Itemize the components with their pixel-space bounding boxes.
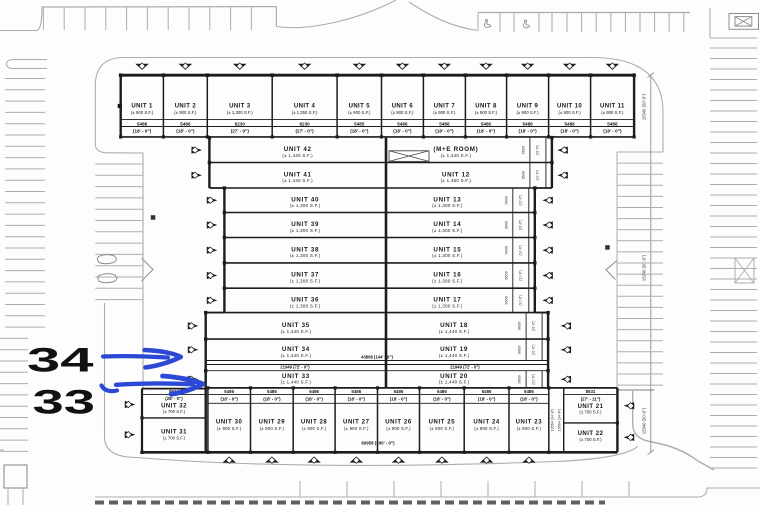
svg-text:5486: 5486 xyxy=(564,121,575,126)
svg-text:(± 900 S.F.): (± 900 S.F.) xyxy=(260,426,285,431)
svg-text:(18' - 0”): (18' - 0”) xyxy=(518,129,537,134)
svg-text:(27' - 0”): (27' - 0”) xyxy=(231,129,250,134)
svg-text:UNIT 27: UNIT 27 xyxy=(343,420,370,426)
svg-text:(18' - 0”): (18' - 0”) xyxy=(305,397,323,402)
svg-text:UNIT 30: UNIT 30 xyxy=(216,420,243,426)
svg-text:8230: 8230 xyxy=(299,121,310,126)
svg-text:9609: 9609 xyxy=(518,375,522,383)
svg-text:(31'-6”): (31'-6”) xyxy=(532,345,536,356)
svg-text:UNIT 29: UNIT 29 xyxy=(259,420,286,426)
svg-text:(± 1,440 S.F.): (± 1,440 S.F.) xyxy=(281,329,312,334)
svg-text:(± 1,440 S.F.): (± 1,440 S.F.) xyxy=(439,329,470,334)
svg-text:9609: 9609 xyxy=(521,146,525,154)
svg-text:(± 1,440 S.F.): (± 1,440 S.F.) xyxy=(281,353,312,358)
svg-text:(± 900 S.F.): (± 900 S.F.) xyxy=(601,110,624,115)
svg-text:(18' - 0”): (18' - 0”) xyxy=(433,397,451,402)
svg-text:(± 900 S.F.): (± 900 S.F.) xyxy=(474,426,499,431)
svg-text:(± 700 S.F.): (± 700 S.F.) xyxy=(163,435,186,440)
svg-text:(± 1,350 S.F.): (± 1,350 S.F.) xyxy=(292,110,318,115)
svg-text:(± 1,300 S.F.): (± 1,300 S.F.) xyxy=(432,303,463,308)
svg-text:60958 (200' - 0”): 60958 (200' - 0”) xyxy=(361,440,395,445)
svg-text:(± 1,300 S.F.): (± 1,300 S.F.) xyxy=(432,279,463,284)
svg-text:UNIT 8: UNIT 8 xyxy=(475,104,497,110)
svg-text:(31'-6”): (31'-6”) xyxy=(518,270,522,281)
svg-text:5486: 5486 xyxy=(481,121,492,126)
svg-text:UNIT 25: UNIT 25 xyxy=(429,420,456,426)
svg-text:10564 (34'-8"): 10564 (34'-8") xyxy=(551,409,555,432)
svg-text:(± 900 S.F.): (± 900 S.F.) xyxy=(344,426,369,431)
svg-text:UNIT 5: UNIT 5 xyxy=(349,104,371,110)
svg-text:UNIT 24: UNIT 24 xyxy=(473,420,500,426)
svg-text:(± 1,300 S.F.): (± 1,300 S.F.) xyxy=(227,110,253,115)
svg-text:(27' - 0”): (27' - 0”) xyxy=(295,129,314,134)
svg-text:(18' - 0”): (18' - 0”) xyxy=(603,129,622,134)
svg-text:9609: 9609 xyxy=(518,322,522,330)
svg-text:(31'-6”): (31'-6”) xyxy=(518,245,522,256)
svg-text:(± 900 S.F.): (± 900 S.F.) xyxy=(386,426,411,431)
svg-text:(18' - 0”): (18' - 0”) xyxy=(478,397,496,402)
svg-text:UNIT 7: UNIT 7 xyxy=(434,104,456,110)
svg-text:(18' - 0”): (18' - 0”) xyxy=(390,397,408,402)
svg-text:(± 900 S.F.): (± 900 S.F.) xyxy=(517,426,542,431)
svg-text:(± 1,300 S.F.): (± 1,300 S.F.) xyxy=(290,253,321,258)
svg-text:5486: 5486 xyxy=(439,121,450,126)
svg-text:5486: 5486 xyxy=(351,389,361,394)
svg-text:(± 1,300 S.F.): (± 1,300 S.F.) xyxy=(290,303,321,308)
svg-text:9609: 9609 xyxy=(504,221,508,229)
svg-text:5486: 5486 xyxy=(267,389,277,394)
svg-text:(31'-6”): (31'-6”) xyxy=(518,195,522,206)
svg-text:(31'-6”): (31'-6”) xyxy=(518,295,522,306)
svg-text:(± 900 S.F.): (± 900 S.F.) xyxy=(131,110,154,115)
svg-text:UNIT 6: UNIT 6 xyxy=(392,104,414,110)
svg-text:5486: 5486 xyxy=(137,121,148,126)
svg-text:(± 700 S.F.): (± 700 S.F.) xyxy=(579,437,602,442)
svg-text:(± 1,300 S.F.): (± 1,300 S.F.) xyxy=(432,228,463,233)
svg-text:(18' - 0”): (18' - 0”) xyxy=(477,129,496,134)
svg-text:(± 1,460 S.F.): (± 1,460 S.F.) xyxy=(441,178,472,183)
svg-text:(± 1,440 S.F.): (± 1,440 S.F.) xyxy=(439,353,470,358)
svg-text:(18' - 0”): (18' - 0”) xyxy=(220,397,238,402)
svg-text:UNIT 1: UNIT 1 xyxy=(131,104,153,110)
svg-text:43898 (144' - 0”): 43898 (144' - 0”) xyxy=(361,354,393,359)
svg-text:(± 1,440 S.F.): (± 1,440 S.F.) xyxy=(282,153,313,158)
svg-text:(± 900 S.F.): (± 900 S.F.) xyxy=(174,110,197,115)
svg-text:UNIT 28: UNIT 28 xyxy=(301,420,328,426)
svg-text:10564 (34'-8"): 10564 (34'-8") xyxy=(558,409,562,432)
svg-text:(18' - 0”): (18' - 0”) xyxy=(520,397,538,402)
svg-text:9609: 9609 xyxy=(504,271,508,279)
svg-text:5486: 5486 xyxy=(524,389,534,394)
svg-text:(± 900 S.F.): (± 900 S.F.) xyxy=(433,110,456,115)
svg-text:33: 33 xyxy=(33,384,96,422)
svg-text:UNIT 26: UNIT 26 xyxy=(385,420,412,426)
svg-text:UNIT 4: UNIT 4 xyxy=(294,104,316,110)
svg-text:(± 1,300 S.F.): (± 1,300 S.F.) xyxy=(432,203,463,208)
svg-text:(18' - 0”): (18' - 0”) xyxy=(263,397,281,402)
svg-text:(± 1,440 S.F.): (± 1,440 S.F.) xyxy=(441,153,472,158)
svg-text:(31'-6”): (31'-6”) xyxy=(535,170,539,181)
svg-text:5486: 5486 xyxy=(394,389,404,394)
svg-text:UNIT 11: UNIT 11 xyxy=(600,104,625,110)
svg-text:15240 (50'-0"): 15240 (50'-0") xyxy=(642,254,647,281)
svg-text:(± 1,440 S.F.): (± 1,440 S.F.) xyxy=(282,178,313,183)
svg-text:UNIT 3: UNIT 3 xyxy=(229,104,251,110)
svg-text:5486: 5486 xyxy=(180,121,191,126)
svg-text:(± 1,300 S.F.): (± 1,300 S.F.) xyxy=(432,253,463,258)
svg-text:15340 (50'-0"): 15340 (50'-0") xyxy=(642,407,647,434)
svg-text:(18' - 0”): (18' - 0”) xyxy=(133,129,152,134)
svg-text:(± 700 S.F.): (± 700 S.F.) xyxy=(163,409,186,414)
svg-text:9609: 9609 xyxy=(504,196,508,204)
svg-text:(18' - 0”): (18' - 0”) xyxy=(393,129,412,134)
svg-text:8531: 8531 xyxy=(586,389,596,394)
svg-text:5486: 5486 xyxy=(309,389,319,394)
svg-text:(18' - 0”): (18' - 0”) xyxy=(560,129,579,134)
svg-text:(± 1,440 S.F.): (± 1,440 S.F.) xyxy=(439,380,470,385)
svg-text:21949 (72' - 0”): 21949 (72' - 0”) xyxy=(450,365,480,370)
svg-text:9609: 9609 xyxy=(504,296,508,304)
svg-text:9609: 9609 xyxy=(504,246,508,254)
svg-text:9609: 9609 xyxy=(518,346,522,354)
svg-text:(± 700 S.F.): (± 700 S.F.) xyxy=(579,410,602,415)
svg-text:(31'-6”): (31'-6”) xyxy=(532,374,536,385)
svg-text:(31'-6”): (31'-6”) xyxy=(532,321,536,332)
svg-text:(± 900 S.F.): (± 900 S.F.) xyxy=(475,110,498,115)
svg-text:UNIT 23: UNIT 23 xyxy=(516,420,543,426)
svg-text:5486: 5486 xyxy=(437,389,447,394)
svg-text:UNIT 9: UNIT 9 xyxy=(517,104,539,110)
svg-text:5486: 5486 xyxy=(522,121,533,126)
svg-text:(± 1,300 S.F.): (± 1,300 S.F.) xyxy=(290,279,321,284)
svg-text:5485: 5485 xyxy=(354,121,365,126)
svg-text:(18' - 0”): (18' - 0”) xyxy=(350,129,369,134)
svg-text:(18' - 0”): (18' - 0”) xyxy=(435,129,454,134)
svg-text:UNIT 2: UNIT 2 xyxy=(175,104,197,110)
svg-text:(31'-6”): (31'-6”) xyxy=(535,145,539,156)
svg-text:(31'-6”): (31'-6”) xyxy=(518,220,522,231)
svg-text:(± 900 S.F.): (± 900 S.F.) xyxy=(391,110,414,115)
svg-text:5486: 5486 xyxy=(224,389,234,394)
svg-text:(± 1,300 S.F.): (± 1,300 S.F.) xyxy=(290,203,321,208)
svg-text:(± 900 S.F.): (± 900 S.F.) xyxy=(559,110,582,115)
svg-text:(± 1,440 S.F.): (± 1,440 S.F.) xyxy=(281,380,312,385)
svg-text:5486: 5486 xyxy=(397,121,408,126)
svg-text:5486: 5486 xyxy=(607,121,618,126)
svg-text:5486: 5486 xyxy=(482,389,492,394)
svg-text:(27' - 11”): (27' - 11”) xyxy=(581,397,601,402)
svg-text:9609: 9609 xyxy=(521,171,525,179)
svg-text:15340 (50'-0"): 15340 (50'-0") xyxy=(642,93,647,120)
svg-text:(± 900 S.F.): (± 900 S.F.) xyxy=(348,110,371,115)
svg-text:(18' - 0”): (18' - 0”) xyxy=(176,129,195,134)
svg-text:(± 900 S.F.): (± 900 S.F.) xyxy=(430,426,455,431)
svg-text:34: 34 xyxy=(27,341,94,379)
svg-text:(± 900 S.F.): (± 900 S.F.) xyxy=(217,426,242,431)
svg-text:8230: 8230 xyxy=(235,121,246,126)
svg-text:(± 900 S.F.): (± 900 S.F.) xyxy=(302,426,327,431)
svg-text:(28' - 0”): (28' - 0”) xyxy=(165,396,183,401)
svg-text:(± 1,300 S.F.): (± 1,300 S.F.) xyxy=(290,228,321,233)
svg-text:21949 (72' - 0”): 21949 (72' - 0”) xyxy=(280,365,310,370)
svg-text:UNIT 10: UNIT 10 xyxy=(557,104,582,110)
svg-text:(18' - 0”): (18' - 0”) xyxy=(348,397,366,402)
svg-text:(± 900 S.F.): (± 900 S.F.) xyxy=(517,110,540,115)
